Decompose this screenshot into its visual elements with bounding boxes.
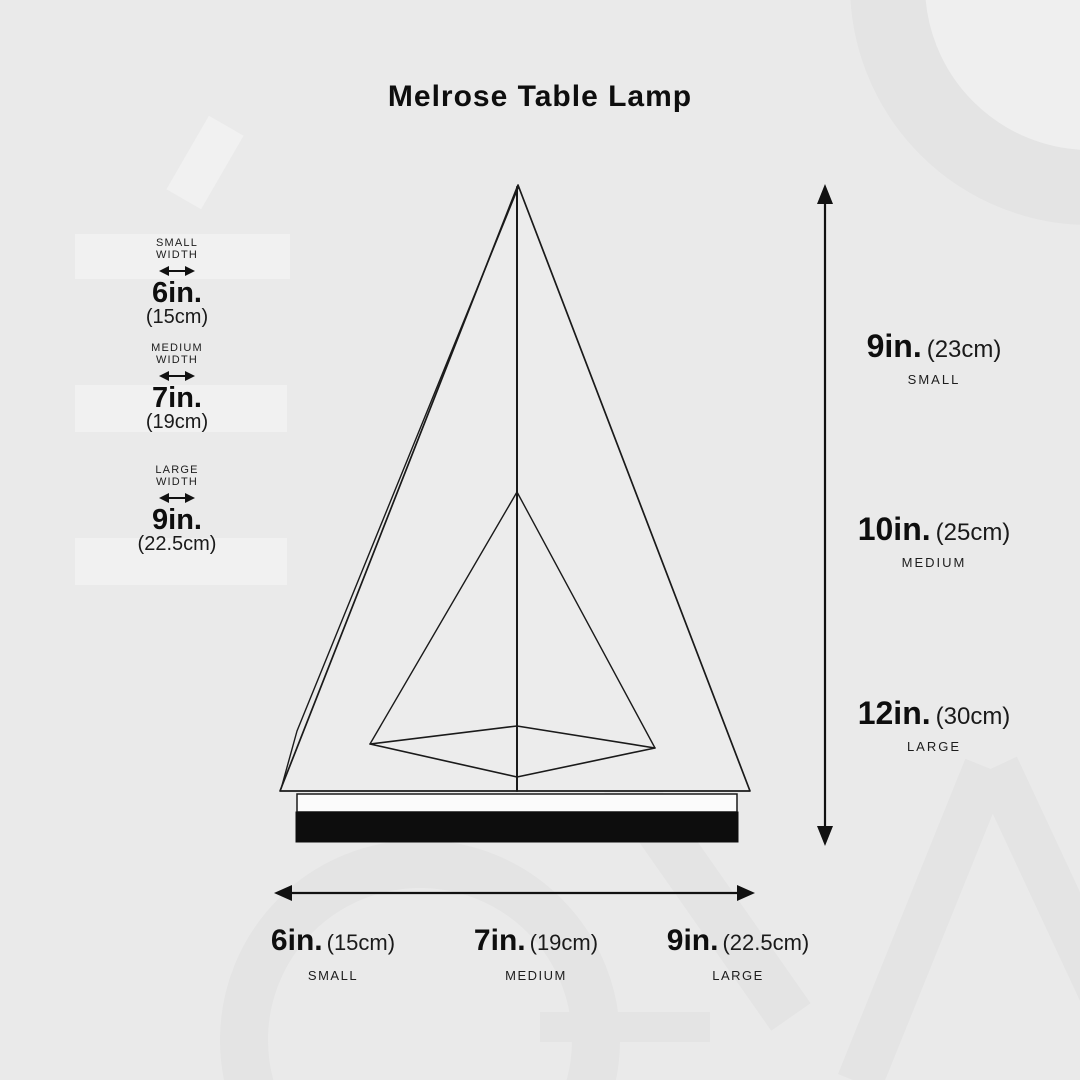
size-name: MEDIUM [474, 968, 598, 983]
height-small: 9in.(23cm) SMALL [828, 331, 1040, 387]
shade-width-small: SMALL WIDTH 6in. (15cm) [87, 237, 267, 327]
cm-value: (19cm) [530, 930, 598, 955]
height-medium: 10in.(25cm) MEDIUM [828, 514, 1040, 570]
cm-value: (15cm) [327, 930, 395, 955]
size-name: MEDIUM [87, 342, 267, 354]
size-name: LARGE [87, 464, 267, 476]
base-width-medium: 7in.(19cm) MEDIUM [474, 925, 598, 983]
size-name: LARGE [828, 739, 1040, 754]
inches-value: 10in. [858, 511, 931, 547]
inches-value: 9in. [87, 506, 267, 534]
double-arrow-icon [159, 370, 195, 382]
cm-value: (22.5cm) [87, 534, 267, 554]
pyramid-shade-outline [280, 185, 750, 791]
inches-value: 6in. [87, 279, 267, 307]
width-dimension-arrow [274, 885, 755, 901]
dimension-name: WIDTH [87, 354, 267, 366]
shade-width-medium: MEDIUM WIDTH 7in. (19cm) [87, 342, 267, 432]
inches-value: 9in. [867, 328, 922, 364]
size-name: SMALL [828, 372, 1040, 387]
dimension-name: WIDTH [87, 249, 267, 261]
inches-value: 12in. [858, 695, 931, 731]
cm-value: (23cm) [927, 336, 1002, 363]
inches-value: 7in. [87, 384, 267, 412]
size-name: MEDIUM [828, 555, 1040, 570]
dimension-name: WIDTH [87, 476, 267, 488]
shade-width-large: LARGE WIDTH 9in. (22.5cm) [87, 464, 267, 554]
cm-value: (25cm) [936, 519, 1011, 546]
lamp-base [296, 794, 738, 842]
base-width-large: 9in.(22.5cm) LARGE [667, 925, 809, 983]
double-arrow-icon [159, 265, 195, 277]
inches-value: 7in. [474, 924, 526, 957]
inches-value: 6in. [271, 924, 323, 957]
cm-value: (22.5cm) [722, 930, 809, 955]
dimension-diagram: Melrose Table Lamp SMALL WIDTH 6in. (15c… [0, 0, 1080, 1080]
cm-value: (15cm) [87, 307, 267, 327]
size-name: LARGE [667, 968, 809, 983]
size-name: SMALL [271, 968, 395, 983]
base-width-small: 6in.(15cm) SMALL [271, 925, 395, 983]
cm-value: (19cm) [87, 412, 267, 432]
height-large: 12in.(30cm) LARGE [828, 698, 1040, 754]
cm-value: (30cm) [936, 703, 1011, 730]
size-name: SMALL [87, 237, 267, 249]
inches-value: 9in. [667, 924, 719, 957]
page-title: Melrose Table Lamp [0, 80, 1080, 114]
double-arrow-icon [159, 492, 195, 504]
